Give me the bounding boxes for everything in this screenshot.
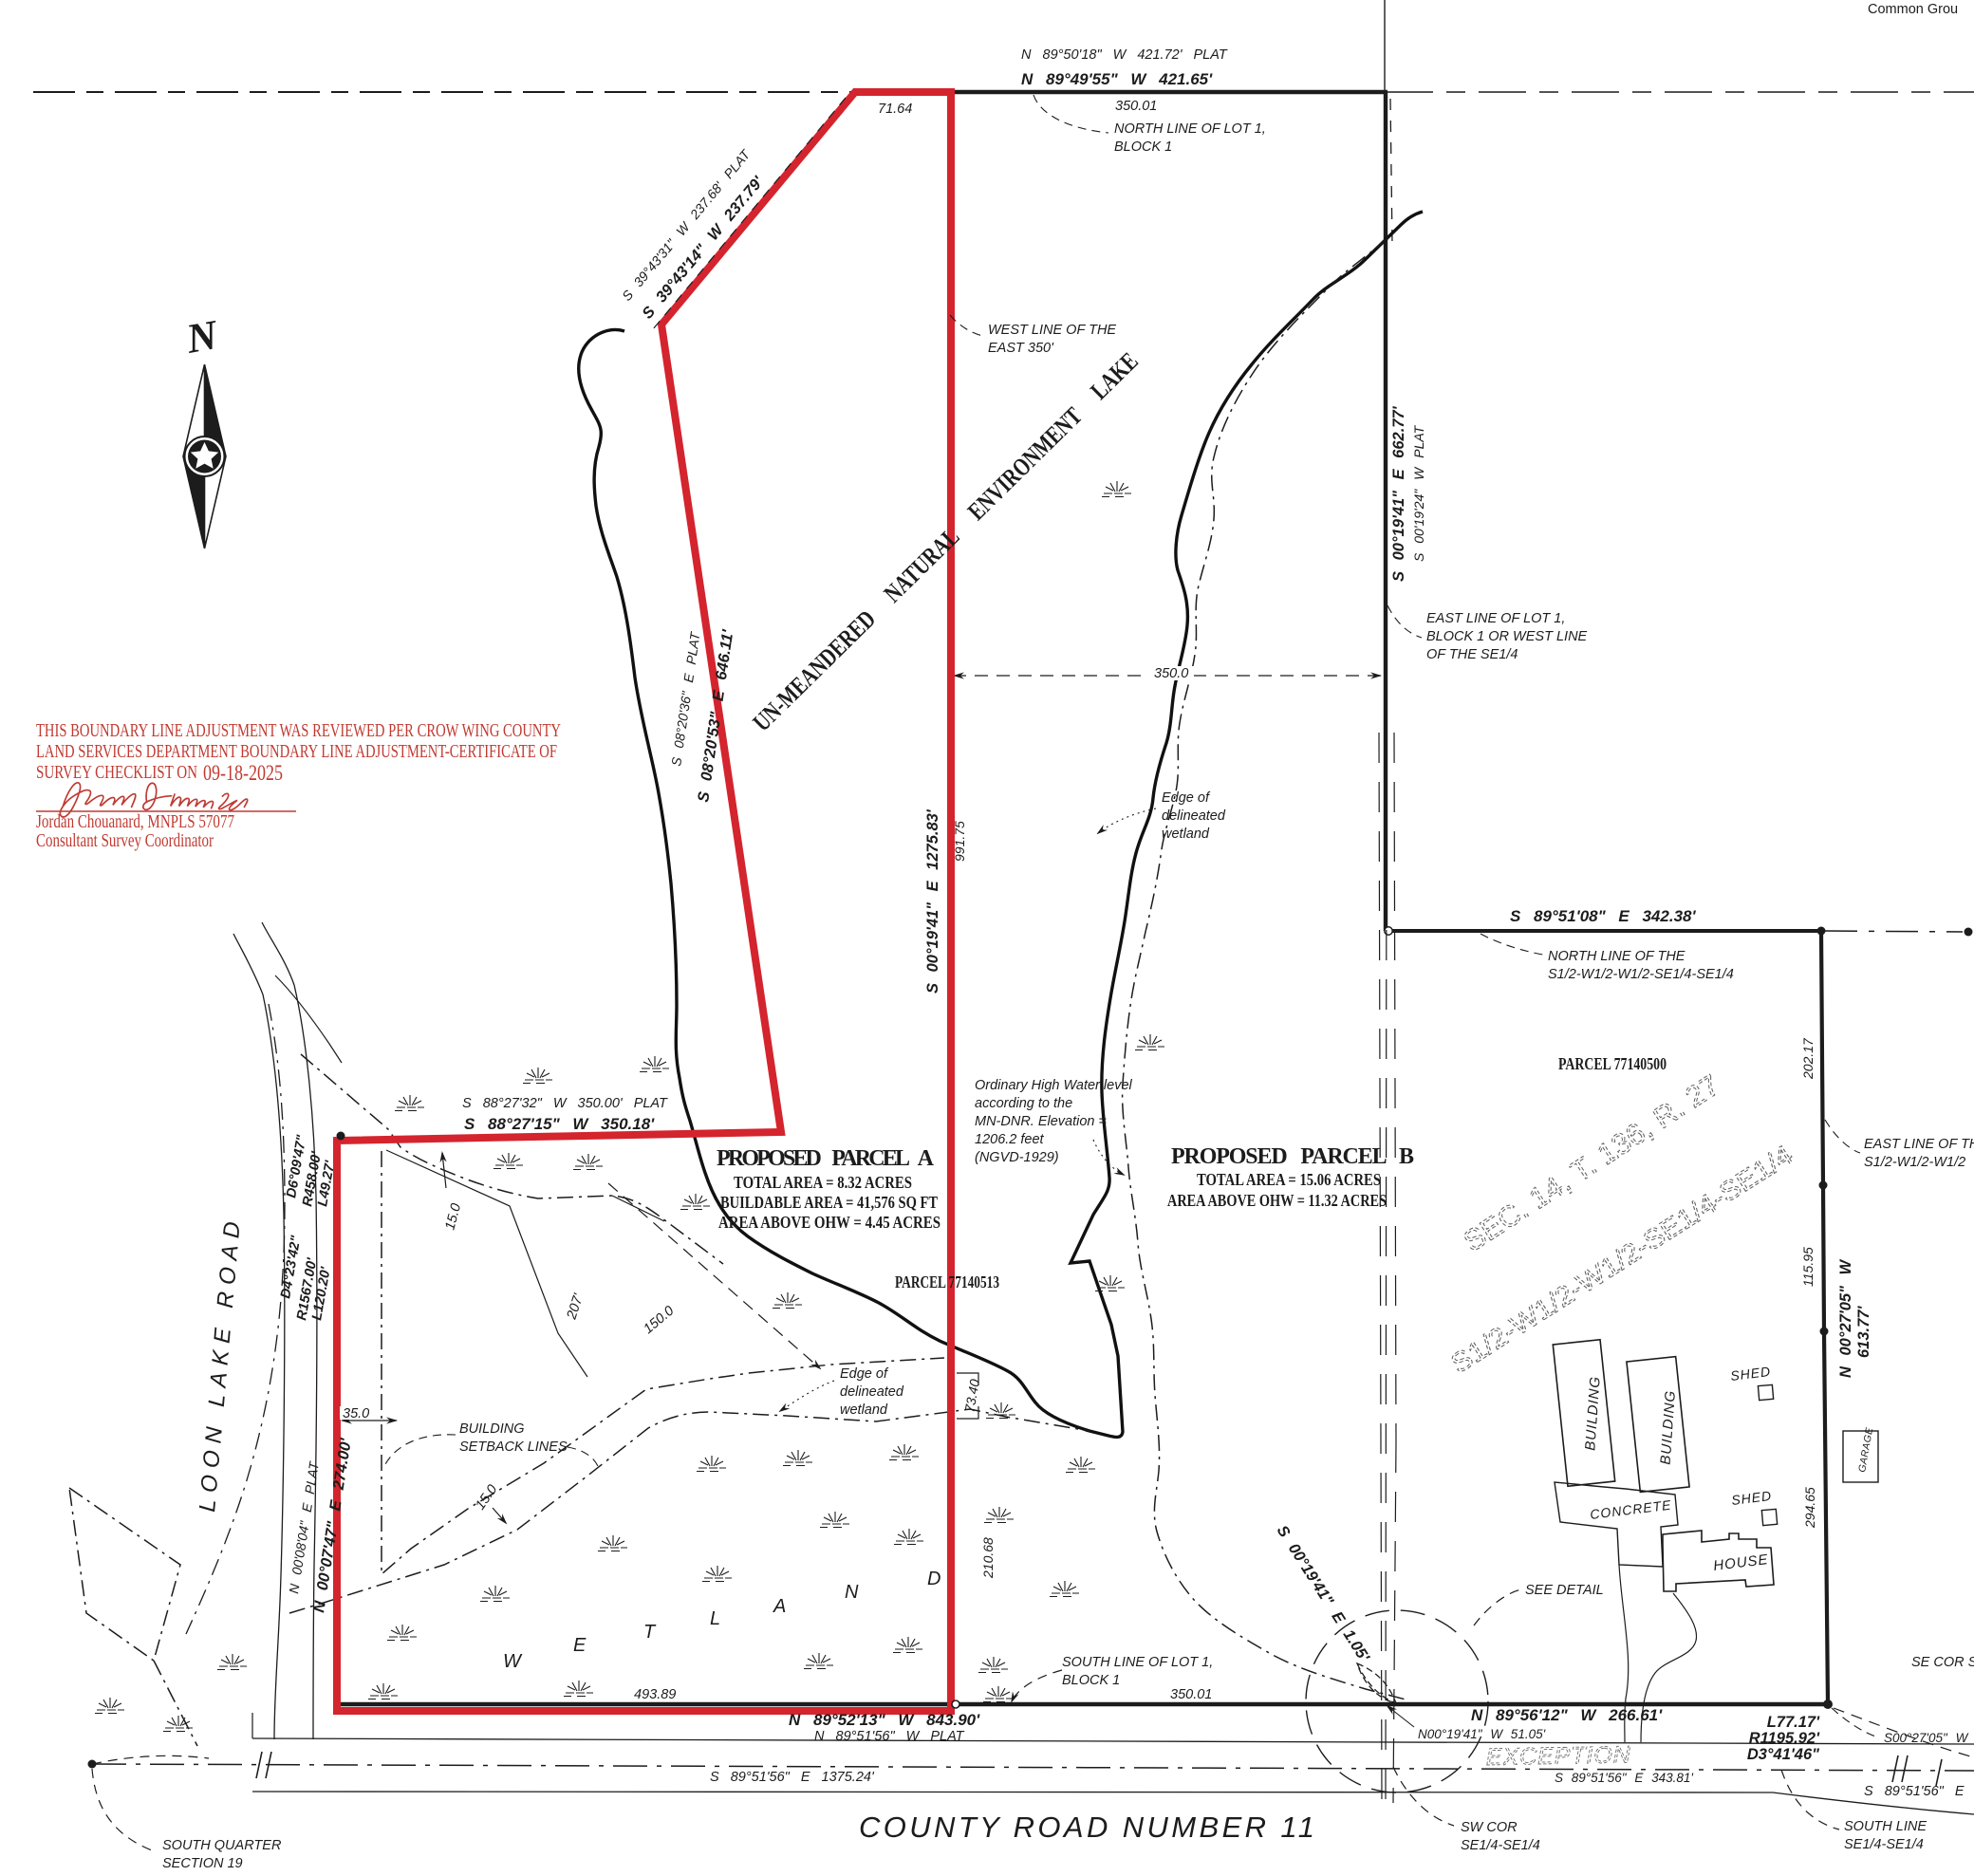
svg-text:L77.17': L77.17' xyxy=(1767,1714,1820,1731)
svg-text:SEE DETAIL: SEE DETAIL xyxy=(1525,1583,1604,1598)
svg-text:202.17: 202.17 xyxy=(1800,1037,1816,1080)
svg-text:BUILDING: BUILDING xyxy=(459,1421,525,1437)
svg-text:N 89°50'18" W 421.72' PLAT: N 89°50'18" W 421.72' PLAT xyxy=(1021,47,1228,63)
svg-text:PARCEL 77140513: PARCEL 77140513 xyxy=(895,1272,999,1291)
svg-text:A: A xyxy=(773,1596,786,1617)
svg-text:350.01: 350.01 xyxy=(1170,1687,1212,1702)
svg-text:S 00°19'41" E 1275.83': S 00°19'41" E 1275.83' xyxy=(924,808,941,994)
svg-text:Edge of: Edge of xyxy=(1162,790,1211,806)
svg-text:delineated: delineated xyxy=(840,1384,904,1400)
svg-text:EAST LINE OF LOT 1,: EAST LINE OF LOT 1, xyxy=(1426,611,1565,626)
svg-text:D3°41'46": D3°41'46" xyxy=(1747,1746,1819,1763)
svg-text:SECTION 19: SECTION 19 xyxy=(162,1856,243,1871)
svg-text:1206.2 feet: 1206.2 feet xyxy=(975,1132,1045,1147)
svg-text:991.75: 991.75 xyxy=(952,821,967,862)
svg-text:T: T xyxy=(643,1622,657,1643)
svg-text:wetland: wetland xyxy=(840,1402,888,1418)
svg-text:SE COR SE: SE COR SE xyxy=(1911,1655,1974,1670)
svg-text:NORTH LINE OF THE: NORTH LINE OF THE xyxy=(1548,949,1685,964)
svg-text:THIS BOUNDARY LINE ADJUSTMENT: THIS BOUNDARY LINE ADJUSTMENT WAS REVIEW… xyxy=(36,721,561,741)
svg-text:Consultant Survey Coordinator: Consultant Survey Coordinator xyxy=(36,831,214,851)
svg-text:S 88°27'15" W 350.18': S 88°27'15" W 350.18' xyxy=(464,1115,655,1133)
svg-text:SOUTH LINE OF LOT 1,: SOUTH LINE OF LOT 1, xyxy=(1062,1655,1213,1670)
svg-text:COUNTY ROAD NUMBER 11: COUNTY ROAD NUMBER 11 xyxy=(859,1811,1314,1844)
svg-text:350.0: 350.0 xyxy=(1154,666,1188,681)
svg-text:according to the: according to the xyxy=(975,1096,1072,1111)
svg-text:350.01: 350.01 xyxy=(1115,99,1157,114)
svg-text:N 89°49'55" W 421.65': N 89°49'55" W 421.65' xyxy=(1021,70,1213,88)
svg-text:BLOCK 1: BLOCK 1 xyxy=(1114,139,1172,155)
svg-text:S1/2-W1/2-W1/2: S1/2-W1/2-W1/2 xyxy=(1864,1155,1965,1170)
svg-text:NORTH LINE OF LOT 1,: NORTH LINE OF LOT 1, xyxy=(1114,121,1266,137)
svg-text:W: W xyxy=(503,1651,523,1672)
svg-text:N 89°51'56" W PLAT: N 89°51'56" W PLAT xyxy=(814,1729,965,1744)
svg-text:N 89°52'13" W 843.90': N 89°52'13" W 843.90' xyxy=(789,1711,980,1729)
svg-text:S1/2-W1/2-W1/2-SE1/4-SE1/4: S1/2-W1/2-W1/2-SE1/4-SE1/4 xyxy=(1548,967,1734,982)
svg-text:wetland: wetland xyxy=(1162,827,1210,842)
svg-text:LAND SERVICES DEPARTMENT BOUND: LAND SERVICES DEPARTMENT BOUNDARY LINE A… xyxy=(36,742,557,762)
svg-text:D: D xyxy=(927,1569,940,1589)
svg-text:Common Grou: Common Grou xyxy=(1868,2,1958,17)
svg-text:(NGVD-1929): (NGVD-1929) xyxy=(975,1150,1059,1165)
svg-text:S 88°27'32" W 350.00' PLAT: S 88°27'32" W 350.00' PLAT xyxy=(462,1096,668,1111)
svg-text:Jordan Chouanard, MNPLS 57077: Jordan Chouanard, MNPLS 57077 xyxy=(36,812,234,832)
svg-text:BUILDABLE AREA = 41,576 SQ FT: BUILDABLE AREA = 41,576 SQ FT xyxy=(720,1193,938,1212)
svg-text:N 00°27'05" W: N 00°27'05" W xyxy=(1837,1259,1854,1378)
svg-text:493.89: 493.89 xyxy=(634,1687,676,1702)
svg-text:SE1/4-SE1/4: SE1/4-SE1/4 xyxy=(1461,1838,1540,1853)
svg-text:S 89°51'56" E 343.81': S 89°51'56" E 343.81' xyxy=(1555,1771,1693,1785)
svg-text:S 00'19'24" W PLAT: S 00'19'24" W PLAT xyxy=(1411,424,1426,562)
svg-text:210.68: 210.68 xyxy=(980,1537,996,1579)
svg-text:EAST LINE OF THE: EAST LINE OF THE xyxy=(1864,1137,1974,1152)
svg-text:AREA ABOVE OHW = 11.32 ACRES: AREA ABOVE OHW = 11.32 ACRES xyxy=(1167,1191,1387,1210)
svg-text:S00°27'05" W 48.99': S00°27'05" W 48.99' xyxy=(1884,1731,1974,1745)
svg-text:PROPOSED PARCEL A: PROPOSED PARCEL A xyxy=(717,1146,935,1171)
svg-text:SURVEY CHECKLIST ON: SURVEY CHECKLIST ON xyxy=(36,763,197,783)
svg-text:BLOCK 1: BLOCK 1 xyxy=(1062,1673,1120,1688)
svg-text:BLOCK 1 OR WEST LINE: BLOCK 1 OR WEST LINE xyxy=(1426,629,1588,644)
svg-text:613.77': 613.77' xyxy=(1855,1306,1872,1358)
svg-text:S 89°51'56" E 10: S 89°51'56" E 10 xyxy=(1864,1784,1974,1799)
svg-text:TOTAL AREA = 15.06 ACRES: TOTAL AREA = 15.06 ACRES xyxy=(1197,1170,1381,1189)
svg-text:N 89°56'12" W 266.61': N 89°56'12" W 266.61' xyxy=(1471,1706,1663,1724)
svg-text:SETBACK LINES: SETBACK LINES xyxy=(459,1440,568,1455)
svg-text:294.65: 294.65 xyxy=(1802,1487,1817,1529)
svg-text:PROPOSED PARCEL B: PROPOSED PARCEL B xyxy=(1171,1144,1414,1169)
svg-text:EXCEPTION: EXCEPTION xyxy=(1486,1741,1631,1771)
svg-text:MN-DNR. Elevation =: MN-DNR. Elevation = xyxy=(975,1114,1107,1129)
svg-text:SW COR: SW COR xyxy=(1461,1820,1518,1835)
svg-text:OF THE SE1/4: OF THE SE1/4 xyxy=(1426,647,1518,662)
svg-text:L: L xyxy=(710,1608,720,1629)
svg-text:EAST 350': EAST 350' xyxy=(988,341,1054,356)
svg-text:Ordinary High Water level: Ordinary High Water level xyxy=(975,1078,1133,1093)
svg-text:PARCEL 77140500: PARCEL 77140500 xyxy=(1558,1054,1667,1073)
svg-text:35.0: 35.0 xyxy=(343,1406,369,1421)
svg-text:N: N xyxy=(845,1582,859,1603)
svg-text:S 89°51'56" E 1375.24': S 89°51'56" E 1375.24' xyxy=(710,1770,875,1785)
svg-text:SE1/4-SE1/4: SE1/4-SE1/4 xyxy=(1844,1837,1924,1852)
svg-text:SOUTH LINE: SOUTH LINE xyxy=(1844,1819,1927,1834)
svg-text:N00°19'41" W 51.05': N00°19'41" W 51.05' xyxy=(1418,1727,1546,1741)
svg-text:Edge of: Edge of xyxy=(840,1366,889,1382)
svg-text:71.64: 71.64 xyxy=(878,102,912,117)
svg-text:WEST LINE OF THE: WEST LINE OF THE xyxy=(988,323,1116,338)
svg-text:09-18-2025: 09-18-2025 xyxy=(203,761,283,786)
svg-text:TOTAL AREA = 8.32 ACRES: TOTAL AREA = 8.32 ACRES xyxy=(734,1173,912,1192)
svg-text:S 00°19'41" E 662.77': S 00°19'41" E 662.77' xyxy=(1390,405,1407,582)
svg-text:SOUTH QUARTER: SOUTH QUARTER xyxy=(162,1838,282,1853)
svg-text:E: E xyxy=(573,1635,587,1656)
svg-text:R1195.92': R1195.92' xyxy=(1749,1730,1820,1747)
svg-text:115.95: 115.95 xyxy=(1800,1247,1816,1287)
svg-text:delineated: delineated xyxy=(1162,808,1226,824)
svg-text:AREA ABOVE OHW = 4.45 ACRES: AREA ABOVE OHW = 4.45 ACRES xyxy=(718,1213,940,1232)
svg-text:S 89°51'08" E 342.38': S 89°51'08" E 342.38' xyxy=(1510,907,1696,925)
